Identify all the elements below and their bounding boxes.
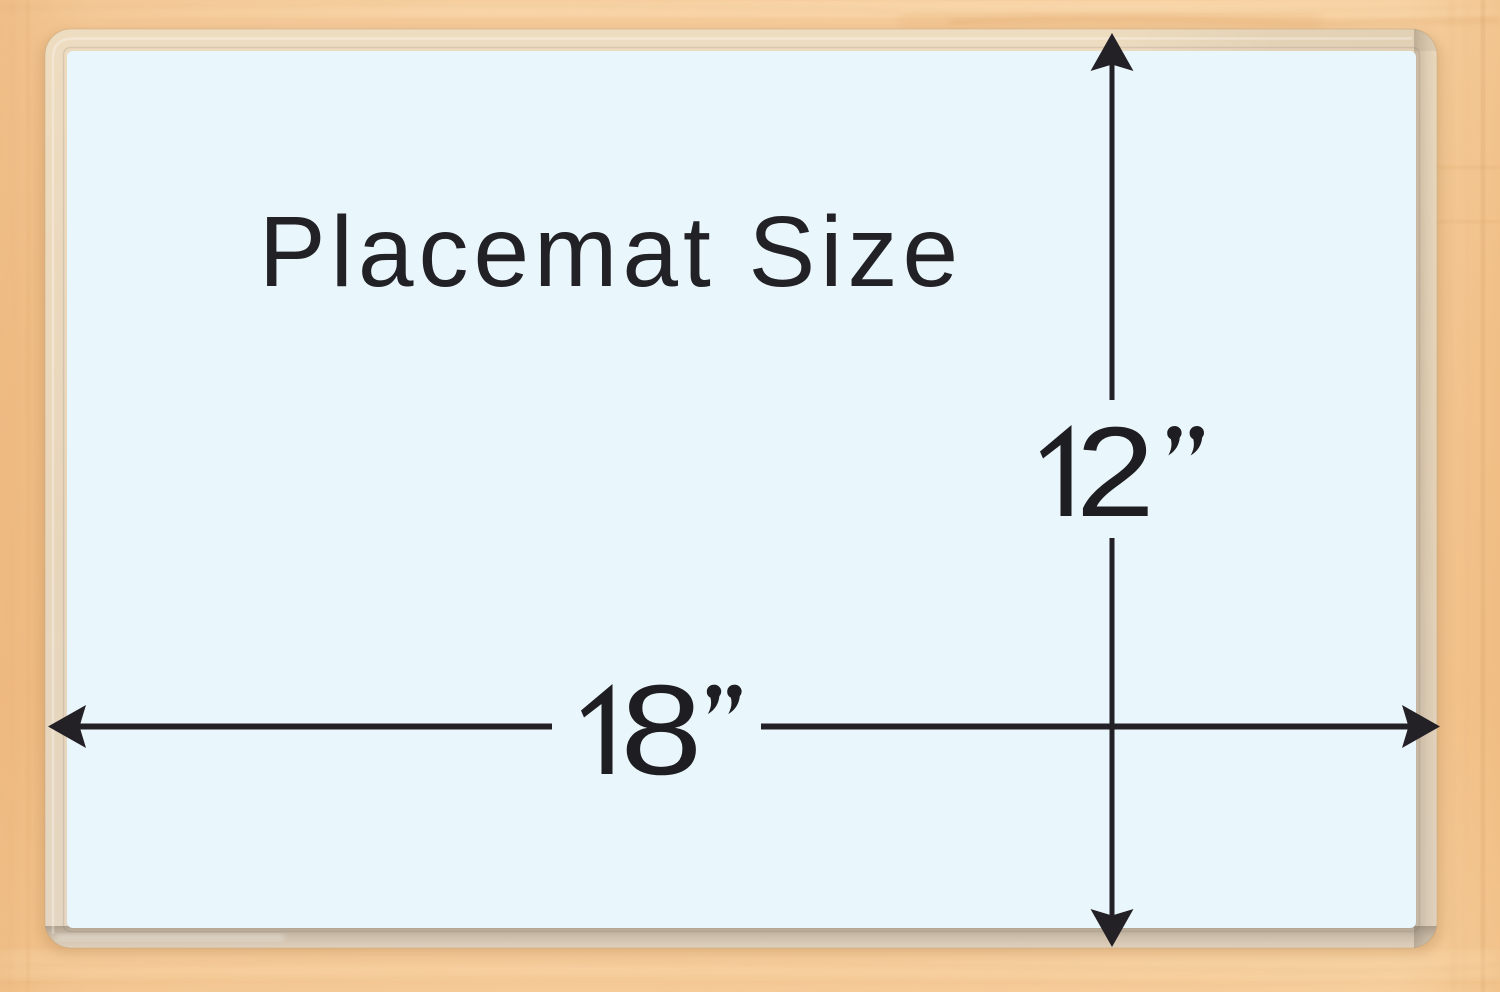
svg-text:8: 8 (620, 659, 702, 802)
svg-text:Placemat Size: Placemat Size (259, 196, 963, 308)
svg-text:2: 2 (1076, 401, 1155, 544)
